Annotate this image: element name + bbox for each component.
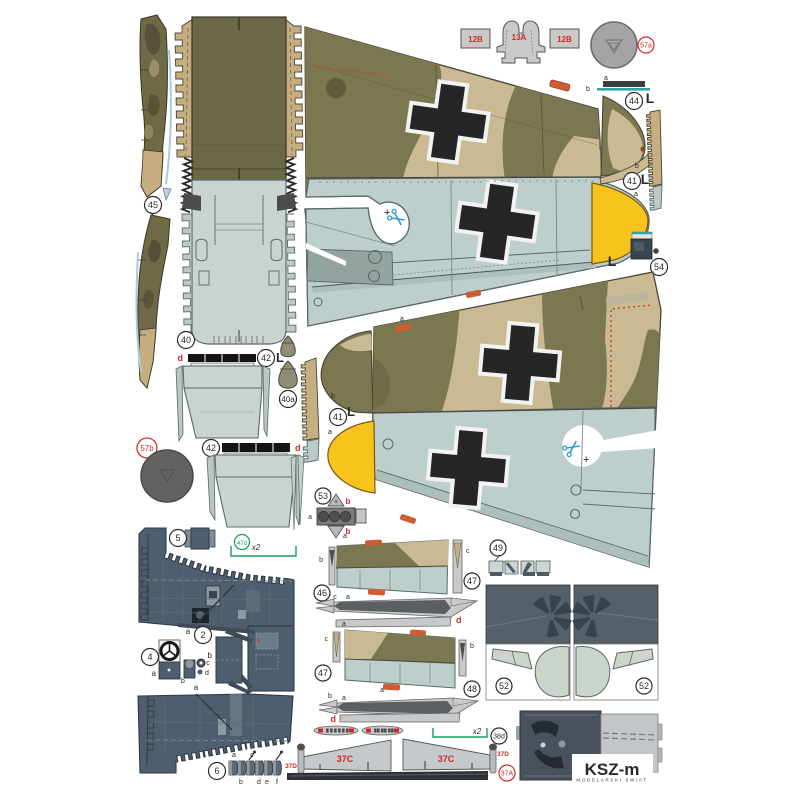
svg-text:41: 41 [333,412,343,422]
svg-text:53: 53 [318,491,328,501]
svg-text:48: 48 [467,684,477,694]
svg-text:x2: x2 [472,727,482,736]
svg-text:5: 5 [175,533,180,543]
svg-text:b: b [208,651,213,660]
svg-text:b: b [346,497,351,506]
svg-text:L: L [646,90,655,106]
svg-text:a: a [343,533,347,540]
svg-text:12B: 12B [557,35,572,44]
svg-text:a: a [232,752,236,759]
svg-text:a: a [194,683,199,692]
svg-text:d: d [205,670,209,677]
svg-text:b: b [331,393,335,400]
svg-text:c: c [250,752,254,759]
svg-text:a: a [328,429,332,436]
svg-text:b: b [470,643,474,650]
svg-text:b: b [319,557,323,564]
svg-text:6: 6 [214,766,219,776]
svg-text:+: + [583,454,589,466]
svg-text:b: b [181,678,185,685]
svg-text:a: a [604,75,608,82]
svg-text:+: + [334,499,338,506]
svg-text:L: L [608,253,617,269]
svg-text:e: e [265,779,269,786]
svg-text:46: 46 [317,588,327,598]
svg-text:d: d [178,353,184,363]
svg-text:47: 47 [467,576,477,586]
svg-text:b: b [328,693,332,700]
svg-text:L: L [276,350,284,365]
svg-text:x2: x2 [251,543,261,552]
svg-text:f: f [276,779,278,786]
svg-text:38d: 38d [493,734,505,741]
svg-text:42: 42 [206,443,216,453]
svg-text:37D: 37D [497,751,509,758]
svg-text:42: 42 [261,353,271,363]
svg-text:a: a [342,621,346,628]
svg-text:37A: 37A [501,771,514,778]
svg-text:49: 49 [493,543,503,553]
svg-text:a: a [152,669,157,678]
svg-text:57a: 57a [640,43,652,50]
svg-text:L: L [641,171,650,187]
svg-text:b: b [239,779,243,786]
svg-text:a: a [634,191,638,198]
svg-text:4: 4 [147,652,152,662]
svg-text:d: d [456,615,462,625]
svg-text:c: c [206,660,210,667]
svg-text:c: c [466,548,470,555]
svg-text:57b: 57b [140,444,154,453]
svg-text:a: a [342,695,346,702]
svg-text:d: d [331,714,337,724]
svg-text:L: L [347,404,355,419]
svg-text:2: 2 [200,630,205,640]
svg-text:45: 45 [148,200,158,210]
svg-text:47d: 47d [237,541,247,547]
svg-text:d: d [257,779,261,786]
svg-text:d: d [295,443,301,453]
svg-text:c: c [325,636,329,643]
svg-text:41: 41 [627,176,637,186]
svg-text:52: 52 [639,681,649,691]
svg-text:KSZ-m: KSZ-m [585,760,640,779]
svg-text:37D: 37D [285,763,297,770]
svg-text:40a: 40a [281,395,295,404]
svg-text:37C: 37C [337,754,354,764]
svg-text:a: a [308,514,312,521]
svg-text:44: 44 [629,96,639,106]
svg-text:40: 40 [181,335,191,345]
svg-text:b: b [586,86,590,93]
svg-text:a: a [380,687,384,694]
svg-text:12B: 12B [468,35,483,44]
svg-text:a: a [400,316,404,323]
svg-text:47: 47 [318,668,328,678]
svg-text:52: 52 [499,681,509,691]
svg-text:b: b [635,163,639,170]
svg-text:a: a [346,594,350,601]
svg-text:a: a [186,627,191,636]
svg-text:37C: 37C [438,754,455,764]
svg-text:MODELARSKI SWIAT: MODELARSKI SWIAT [576,778,647,783]
svg-text:13A: 13A [512,33,527,42]
svg-text:54: 54 [654,262,664,272]
